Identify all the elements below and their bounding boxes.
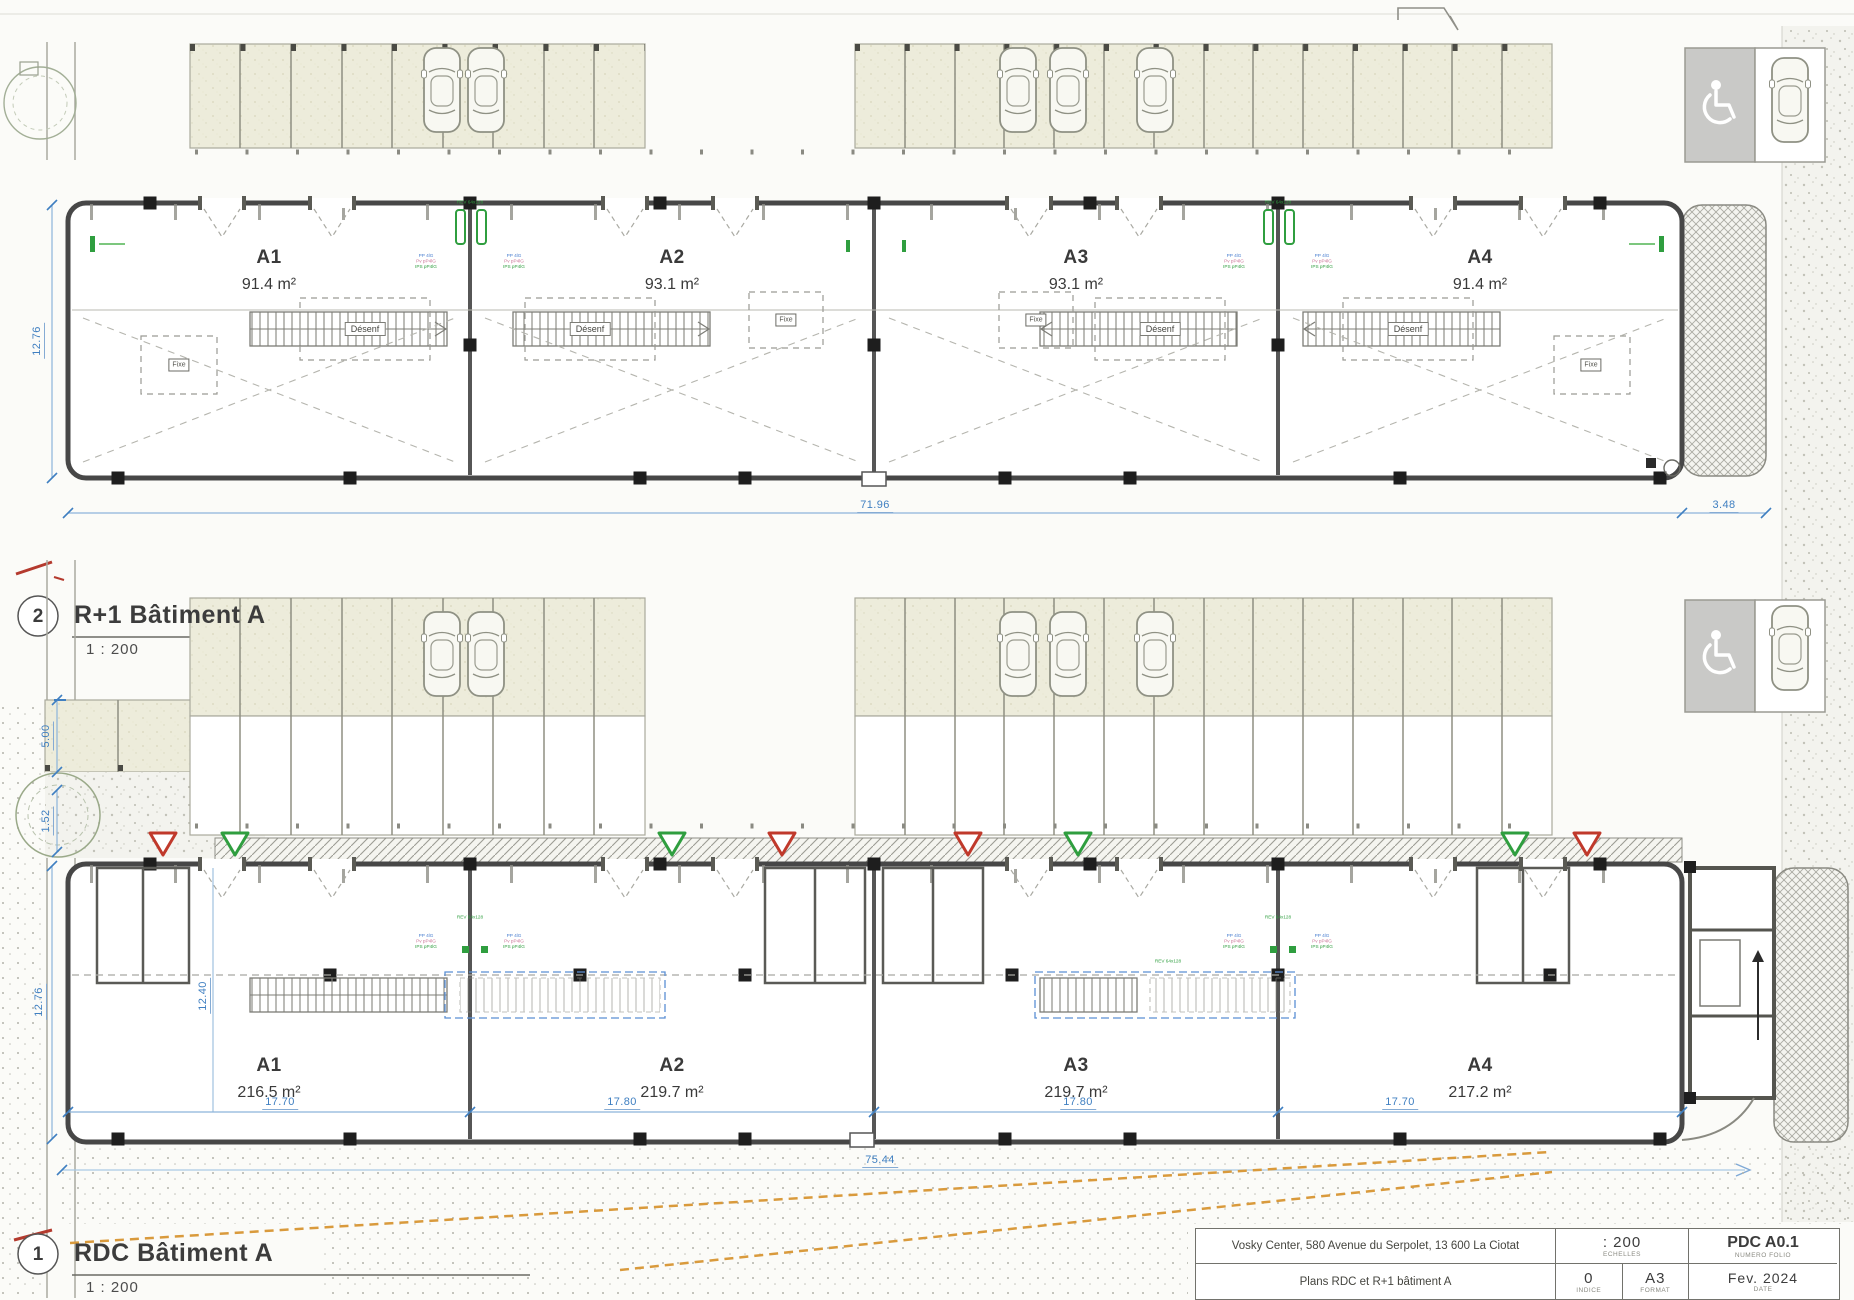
dim-height-rdc: 12.76 bbox=[33, 984, 47, 1020]
smoke-vent-label: Désenf bbox=[345, 322, 386, 336]
sheet-title: Plans RDC et R+1 bâtiment A bbox=[1300, 1276, 1452, 1288]
ramp-hatch-r1 bbox=[1682, 205, 1766, 476]
title-block: Vosky Center, 580 Avenue du Serpolet, 13… bbox=[1195, 1228, 1840, 1300]
door-annotation: PP 4lGPv pP4lGIPS pP4lG bbox=[1311, 254, 1333, 270]
date-label: DATE bbox=[1754, 1286, 1773, 1293]
fixe-label: Fixe bbox=[168, 359, 189, 372]
door-annotation: PP 4lGPv pP4lGIPS pP4lG bbox=[415, 934, 437, 950]
title-block-scale-cell: : 200 ECHELLES bbox=[1556, 1229, 1689, 1264]
unit-label: A1 bbox=[256, 1055, 281, 1077]
door-annotation: REV 64x128 bbox=[1155, 959, 1181, 964]
dim-unit-width: 17.80 bbox=[604, 1096, 640, 1110]
unit-area: 93.1 m² bbox=[1049, 276, 1103, 294]
parking-row-top bbox=[4, 8, 1825, 162]
unit-label: A1 bbox=[256, 247, 281, 269]
scale-label: ECHELLES bbox=[1603, 1251, 1641, 1258]
tree-symbol bbox=[4, 67, 76, 139]
unit-area: 217.2 m² bbox=[1448, 1084, 1511, 1102]
dim-walkway: 1.52 bbox=[40, 806, 54, 835]
index-label: INDICE bbox=[1576, 1287, 1601, 1294]
drawing-sheet: A1 91.4 m² A2 93.1 m² A3 93.1 m² A4 91.4… bbox=[0, 0, 1854, 1300]
door-annotation: PP 4lGPv pP4lGIPS pP4lG bbox=[1223, 254, 1245, 270]
date-value: Fev. 2024 bbox=[1728, 1270, 1798, 1286]
scale-value: : 200 bbox=[1603, 1234, 1641, 1251]
annex-block bbox=[1682, 861, 1774, 1140]
unit-label: A2 bbox=[659, 1055, 684, 1077]
unit-label: A2 bbox=[659, 247, 684, 269]
door-annotation: PP 4lGPv pP4lGIPS pP4lG bbox=[503, 254, 525, 270]
index-value: 0 bbox=[1584, 1270, 1593, 1287]
unit-label: A4 bbox=[1467, 1055, 1492, 1077]
unit-label: A4 bbox=[1467, 247, 1492, 269]
view-title: RDC Bâtiment A bbox=[74, 1239, 273, 1268]
view-scale: 1 : 200 bbox=[86, 641, 139, 658]
door-annotation: PP 4lGPv pP4lGIPS pP4lG bbox=[415, 254, 437, 270]
smoke-vent-label: Désenf bbox=[1140, 322, 1181, 336]
dim-height-r1: 12.76 bbox=[31, 323, 45, 359]
format-value: A3 bbox=[1645, 1270, 1665, 1287]
format-label: FORMAT bbox=[1640, 1287, 1670, 1294]
folio-label: NUMERO FOLIO bbox=[1735, 1252, 1791, 1259]
dim-width-r1: 71.96 bbox=[857, 499, 893, 513]
title-block-date-cell: Fev. 2024 DATE bbox=[1689, 1264, 1837, 1299]
door-annotation: REV 64x128 bbox=[1265, 200, 1291, 205]
unit-area: 93.1 m² bbox=[645, 276, 699, 294]
door-annotation: PP 4lGPv pP4lGIPS pP4lG bbox=[1311, 934, 1333, 950]
unit-label: A3 bbox=[1063, 247, 1088, 269]
door-annotation: PP 4lGPv pP4lGIPS pP4lG bbox=[1223, 934, 1245, 950]
fixe-label: Fixe bbox=[1025, 314, 1046, 327]
dim-stall-depth: 5.00 bbox=[40, 721, 54, 750]
spot-marks-r1 bbox=[16, 562, 64, 580]
title-block-address-cell: Vosky Center, 580 Avenue du Serpolet, 13… bbox=[1196, 1229, 1556, 1264]
view-number: 1 bbox=[33, 1244, 44, 1266]
building-r1 bbox=[68, 196, 1766, 486]
walkway-hatch bbox=[215, 838, 1682, 862]
ramp-hatch-rdc bbox=[1774, 868, 1848, 1142]
smoke-vent-label: Désenf bbox=[1388, 322, 1429, 336]
door-annotation: REV 64x128 bbox=[457, 200, 483, 205]
dim-interior-rdc: 12.40 bbox=[197, 978, 211, 1014]
dim-right-r1: 3.48 bbox=[1709, 499, 1738, 513]
dim-total-rdc: 75.44 bbox=[862, 1154, 898, 1168]
unit-area: 91.4 m² bbox=[242, 276, 296, 294]
title-block-title-cell: Plans RDC et R+1 bâtiment A bbox=[1196, 1264, 1556, 1299]
dim-unit-width: 17.70 bbox=[262, 1096, 298, 1110]
door-annotation: REV 64x128 bbox=[1265, 915, 1291, 920]
smoke-vent-label: Désenf bbox=[570, 322, 611, 336]
project-address: Vosky Center, 580 Avenue du Serpolet, 13… bbox=[1232, 1240, 1520, 1252]
unit-area: 91.4 m² bbox=[1453, 276, 1507, 294]
door-annotation: REV 64x128 bbox=[457, 915, 483, 920]
title-block-folio-cell: PDC A0.1 NUMERO FOLIO bbox=[1689, 1229, 1837, 1264]
door-annotation: PP 4lGPv pP4lGIPS pP4lG bbox=[503, 934, 525, 950]
view-number: 2 bbox=[33, 606, 44, 628]
dim-unit-width: 17.70 bbox=[1382, 1096, 1418, 1110]
building-rdc bbox=[68, 857, 1848, 1147]
view-scale: 1 : 200 bbox=[86, 1279, 139, 1296]
dim-unit-width: 17.80 bbox=[1060, 1096, 1096, 1110]
view-title: R+1 Bâtiment A bbox=[74, 601, 266, 630]
fixe-label: Fixe bbox=[1580, 359, 1601, 372]
folio-value: PDC A0.1 bbox=[1727, 1234, 1798, 1252]
fixe-label: Fixe bbox=[775, 314, 796, 327]
title-block-index-format-cell: 0 INDICE A3 FORMAT bbox=[1556, 1264, 1689, 1299]
unit-label: A3 bbox=[1063, 1055, 1088, 1077]
unit-area: 219.7 m² bbox=[640, 1084, 703, 1102]
